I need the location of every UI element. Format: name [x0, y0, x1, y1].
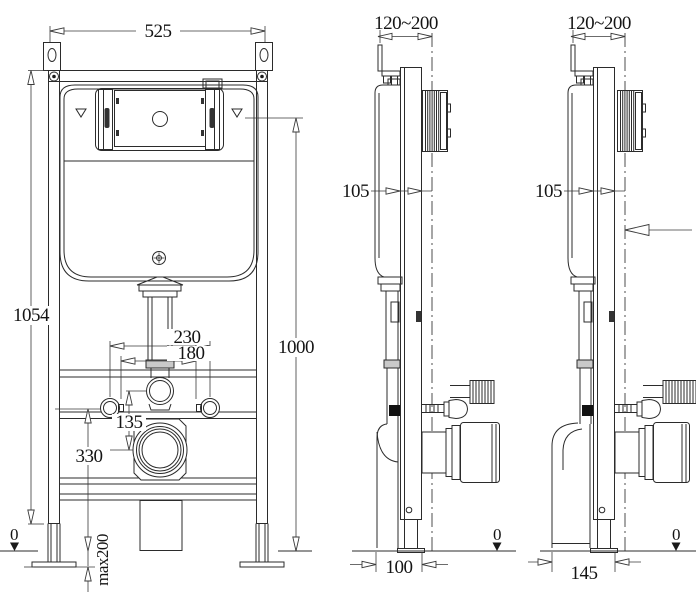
spacer-block-b — [618, 91, 646, 152]
section-arrow — [625, 225, 692, 236]
dim-135-label: 135 — [116, 412, 143, 433]
drain-screw — [153, 252, 166, 265]
front-view: 525 1054 1000 230 — [0, 21, 319, 592]
dim-105-label-a: 105 — [342, 181, 369, 202]
dim-frame-height: 1054 — [10, 71, 52, 525]
dim-120-200-label-a: 120~200 — [374, 13, 438, 34]
spacer-block-a — [423, 91, 451, 152]
floor-marker-b: 0 — [672, 525, 681, 551]
dim-bracket-range-b: 120~200 — [567, 13, 631, 43]
push-button-hole — [153, 112, 168, 127]
dim-145-label: 145 — [571, 563, 598, 584]
floor-marker-a: 0 — [493, 525, 502, 551]
drain-elbow-b — [552, 423, 590, 548]
frame-column-a — [398, 68, 425, 553]
dim-180-label: 180 — [178, 343, 205, 364]
pan-connector-b — [615, 423, 690, 483]
zero-label-a: 0 — [493, 525, 501, 544]
level-mark-left — [76, 109, 86, 117]
level-mark-right — [232, 109, 242, 117]
dim-outlet-b: 145 — [528, 552, 641, 584]
dim-1054-label: 1054 — [13, 305, 50, 326]
mounting-tab-left — [44, 43, 61, 71]
side-view-b: 120~200 105 145 0 — [528, 13, 696, 584]
drawing-canvas: 525 1054 1000 230 — [0, 0, 696, 600]
access-panel — [115, 91, 206, 147]
adjustable-foot-right — [240, 524, 284, 568]
dim-outlet-a: 100 — [350, 552, 448, 578]
dim-105-label-b: 105 — [535, 181, 562, 202]
mounting-tab-right — [256, 43, 273, 71]
dim-foot-adjustment: max200 — [24, 534, 112, 592]
dim-100-label: 100 — [386, 557, 413, 578]
dim-overall-width: 525 — [50, 21, 265, 42]
fixing-stud-a — [422, 400, 468, 419]
zero-label-b: 0 — [672, 525, 680, 544]
adjustable-foot-left — [32, 524, 76, 568]
installation-drawing: 525 1054 1000 230 — [0, 0, 696, 600]
dim-waste-height: 330 — [55, 409, 108, 551]
zero-label-front: 0 — [10, 525, 18, 544]
dim-max200-label: max200 — [93, 534, 112, 586]
waste-duct — [140, 501, 182, 551]
front-frame — [32, 43, 284, 568]
dim-525-label: 525 — [145, 21, 172, 42]
pan-connector-a — [422, 423, 500, 483]
side-view-a: 120~200 105 100 0 — [342, 13, 516, 578]
dim-bracket-range-a: 120~200 — [374, 13, 438, 43]
fixing-stud-b — [615, 400, 661, 419]
dim-120-200-label-b: 120~200 — [567, 13, 631, 34]
frame-column-b — [591, 68, 618, 553]
flush-bend — [147, 378, 174, 405]
cistern — [60, 79, 258, 281]
drain-elbow-a — [377, 424, 398, 548]
dim-330-label: 330 — [76, 446, 103, 467]
dim-1000-label: 1000 — [278, 337, 314, 358]
